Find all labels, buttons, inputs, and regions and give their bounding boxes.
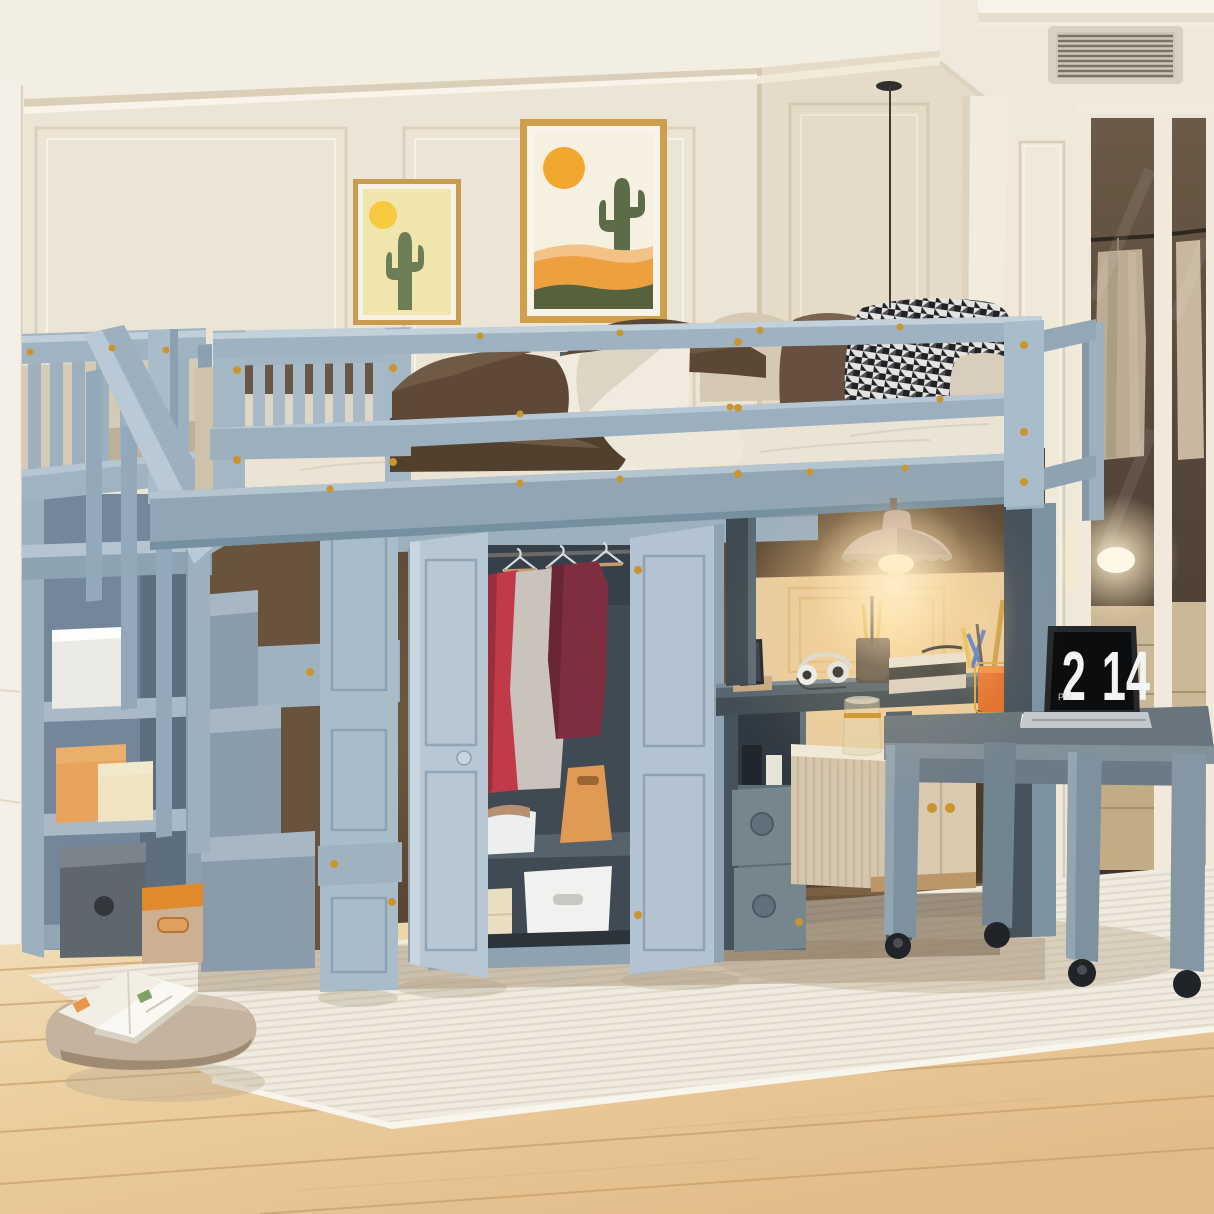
svg-text:14: 14 xyxy=(1102,637,1151,715)
svg-text:PM: PM xyxy=(1058,692,1072,702)
svg-text:2: 2 xyxy=(1062,637,1086,715)
